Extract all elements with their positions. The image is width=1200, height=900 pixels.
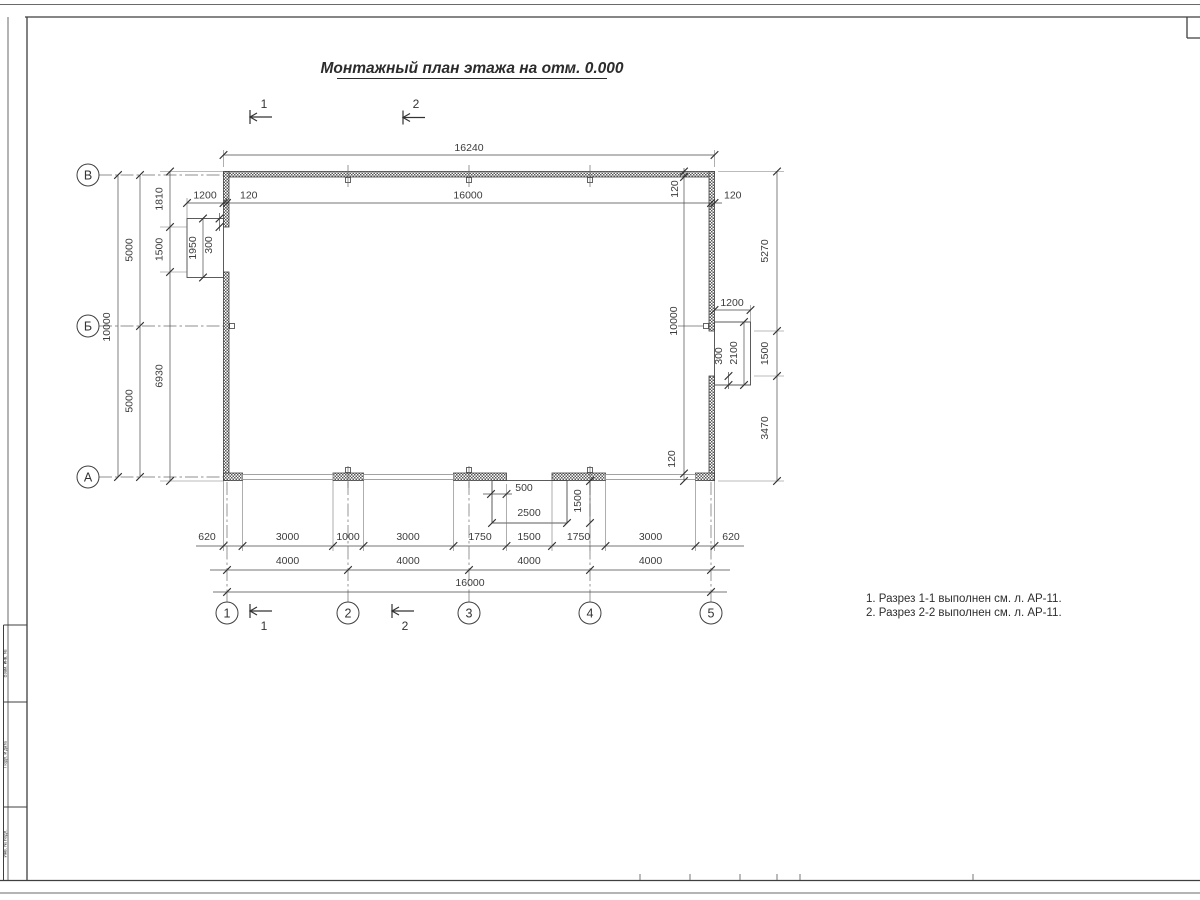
frame-border [0,17,1200,881]
pier-5 [696,473,715,481]
dim-right-120a: 120 [669,180,681,198]
dim-top-1200: 1200 [193,190,217,202]
axis-bubble-labels: В Б А 1 2 3 4 5 [84,169,715,621]
section-mark-2-top [403,111,425,125]
dim-b2-4000d: 4000 [639,555,663,567]
section-mark-1-bottom [250,604,272,618]
dim-b2-4000c: 4000 [517,555,541,567]
dim-b1-620a: 620 [198,531,216,543]
wall-left-lower [224,272,230,481]
dim-right-1500: 1500 [759,342,771,366]
section-label-2-top: 2 [413,97,420,111]
dim-landR-300: 300 [713,347,725,365]
dim-porch-1500: 1500 [572,489,584,513]
axis-label-5: 5 [708,607,715,621]
extension-lines [160,150,784,551]
column-marker [704,324,709,329]
column-marker [230,324,235,329]
stamp-label-1: Взам. инв. № [3,649,8,677]
dim-right-3470: 3470 [759,416,771,440]
paper-edge-lines [0,5,1200,894]
walls [224,172,715,481]
dim-landR-1200: 1200 [720,297,744,309]
floor-plan-drawing: Взам. инв. № Подп. и дата Инв. № подл. М… [0,0,1200,900]
sill-2 [364,475,454,480]
wall-right-upper [709,172,715,332]
sill-1 [243,475,334,480]
dim-b1-620b: 620 [722,531,740,543]
dim-landR-2100: 2100 [728,341,740,365]
pier-1 [224,473,243,481]
dim-b1-1500: 1500 [517,531,541,543]
dim-left-5000a: 5000 [124,238,136,262]
notes-block: 1. Разрез 1-1 выполнен см. л. АР-11. 2. … [866,593,1062,619]
dim-left-1500: 1500 [154,238,166,262]
axis-label-2: 2 [345,607,352,621]
dim-right-10000: 10000 [668,306,680,335]
stamp-label-2: Подп. и дата [3,741,8,768]
section-label-1-top: 1 [261,97,268,111]
dim-landL-300: 300 [203,236,215,254]
dim-top-120b: 120 [724,190,742,202]
dim-left-5000b: 5000 [124,389,136,413]
wall-right-lower [709,376,715,481]
drawing-title: Монтажный план этажа на отм. 0.000 [320,60,623,79]
dimension-labels: 16240 1200 120 16000 120 1200 500 2500 6… [193,142,744,589]
dimension-ticks [114,151,781,596]
axis-label-1: 1 [224,607,231,621]
dim-left-10000: 10000 [101,312,113,341]
stamp-label-3: Инв. № подл. [3,829,8,857]
column-markers [230,178,709,473]
axis-stubs [348,165,704,488]
axis-label-A: А [84,471,93,485]
dim-b1-1000: 1000 [336,531,360,543]
sheet-frame: Взам. инв. № Подп. и дата Инв. № подл. [0,5,1200,894]
drawing-sheet: Взам. инв. № Подп. и дата Инв. № подл. М… [0,0,1200,900]
axis-label-B: Б [84,320,92,334]
dim-b1-1750a: 1750 [468,531,492,543]
dim-right-5270: 5270 [759,239,771,263]
wall-left-upper [224,172,230,228]
dim-porch-500: 500 [515,482,533,494]
dim-b1-3000a: 3000 [276,531,300,543]
dim-top-120a: 120 [240,190,258,202]
dim-landL-1950: 1950 [187,236,199,260]
section-label-1-bottom: 1 [261,619,268,633]
dim-b1-3000b: 3000 [396,531,420,543]
note-line-1: 1. Разрез 1-1 выполнен см. л. АР-11. [866,593,1062,605]
section-label-2-bottom: 2 [402,619,409,633]
dim-overall-top: 16240 [454,142,483,154]
dim-top-16000: 16000 [453,190,482,202]
section-mark-1-top [250,110,272,124]
dim-b1-1750b: 1750 [567,531,591,543]
dim-b1-3000c: 3000 [639,531,663,543]
dim-porch-2500: 2500 [517,507,541,519]
axis-label-4: 4 [587,607,594,621]
title-block-stubs [640,874,973,880]
note-line-2: 2. Разрез 2-2 выполнен см. л. АР-11. [866,607,1062,619]
axis-label-3: 3 [466,607,473,621]
pier-4 [552,473,606,481]
dim-left-6930: 6930 [154,364,166,388]
dimension-labels-rotated: 10000 5000 5000 1810 1500 6930 1950 300 … [101,180,771,513]
pier-3 [454,473,507,481]
axis-label-V: В [84,169,92,183]
dim-left-1810: 1810 [154,187,166,211]
dim-b3-16000: 16000 [455,577,484,589]
dim-b2-4000a: 4000 [276,555,300,567]
section-mark-2-bottom [392,604,414,618]
title-text: Монтажный план этажа на отм. 0.000 [320,60,623,77]
dim-b2-4000b: 4000 [396,555,420,567]
dim-right-120b: 120 [666,450,678,468]
